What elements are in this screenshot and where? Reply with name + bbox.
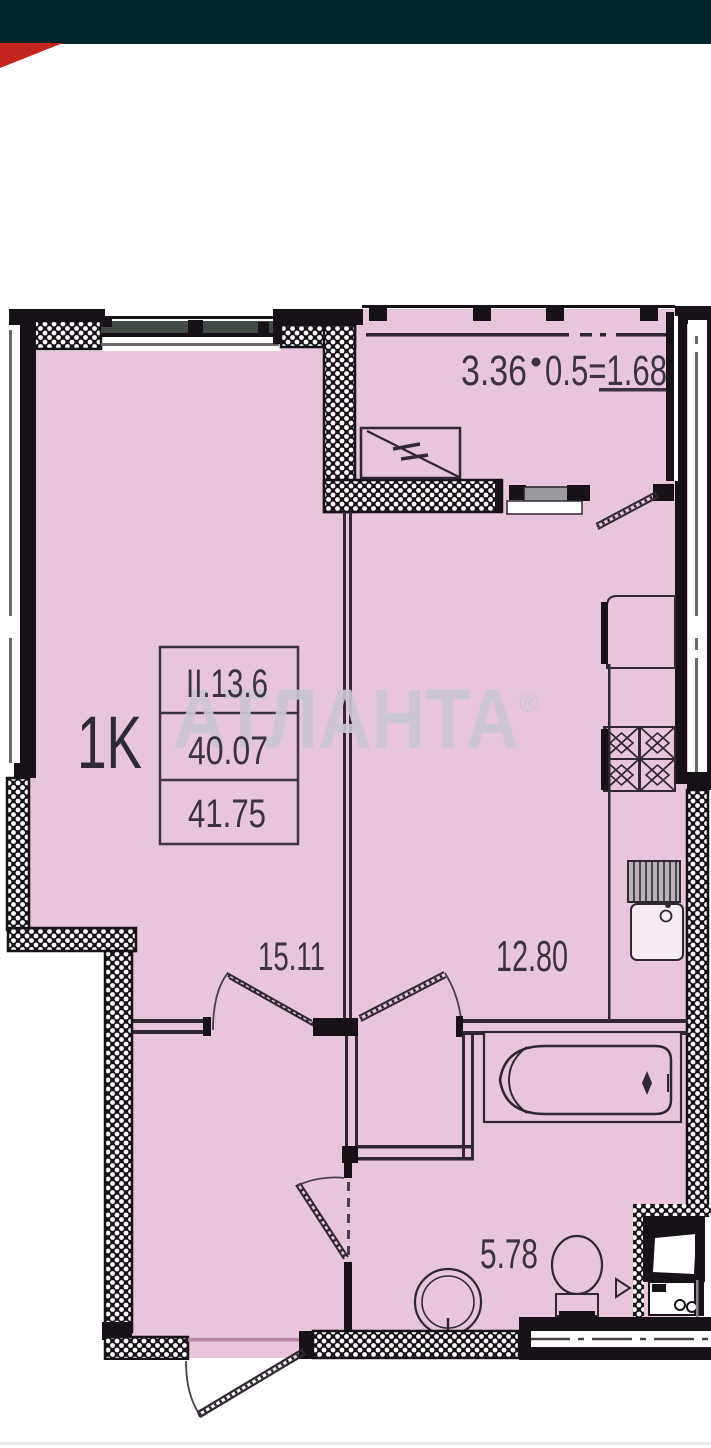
svg-text:II.13.6: II.13.6 bbox=[186, 662, 268, 706]
svg-text:5.78: 5.78 bbox=[480, 1230, 538, 1277]
svg-text:3.36: 3.36 bbox=[461, 347, 527, 395]
svg-text:®: ® bbox=[519, 688, 538, 718]
svg-text:1K: 1K bbox=[77, 701, 142, 784]
svg-text:12.80: 12.80 bbox=[496, 932, 568, 981]
svg-text:41.75: 41.75 bbox=[188, 792, 266, 836]
svg-text:0.5=1.68: 0.5=1.68 bbox=[545, 347, 667, 395]
svg-text:40.07: 40.07 bbox=[188, 729, 268, 773]
svg-text:15.11: 15.11 bbox=[258, 935, 325, 979]
